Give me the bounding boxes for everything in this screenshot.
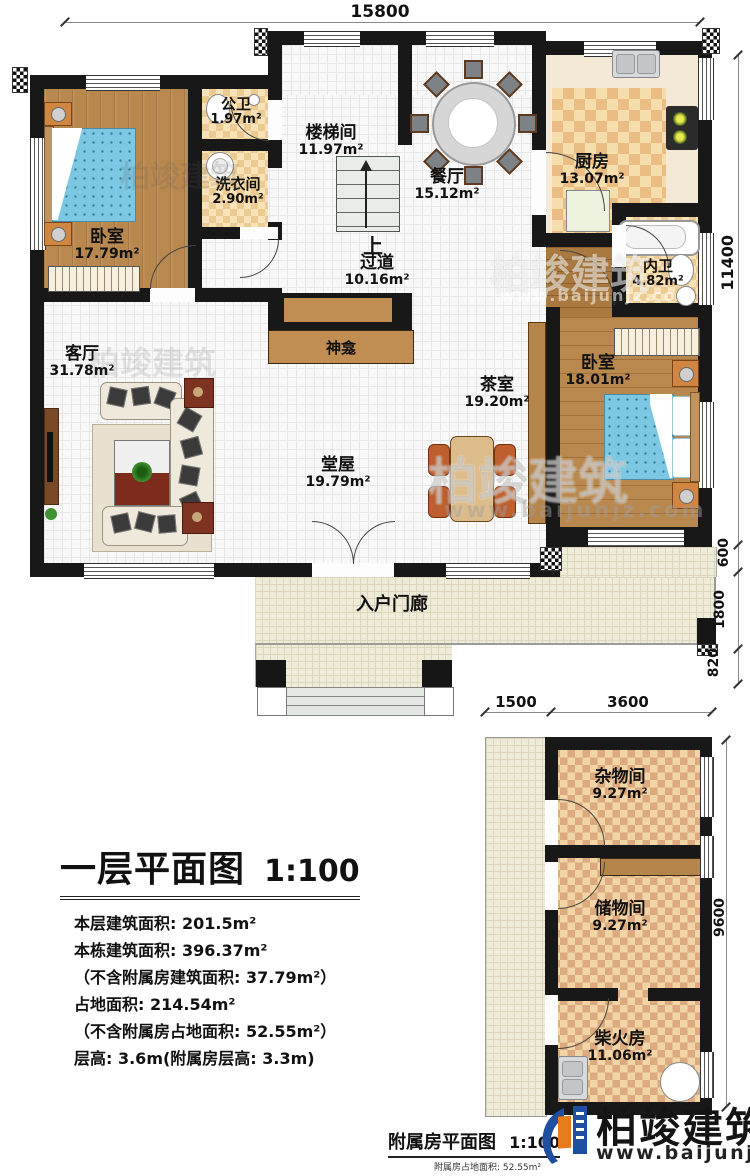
wall	[545, 1045, 558, 1102]
door-gap	[268, 100, 282, 140]
window	[698, 58, 714, 120]
sink-ensuite	[676, 286, 696, 306]
dimension-line-top	[65, 22, 700, 23]
window	[700, 836, 714, 878]
wall	[648, 988, 700, 1001]
sofa-pillow	[106, 386, 127, 407]
door-gap	[612, 225, 626, 267]
porch-label: 入户门廊	[332, 590, 452, 616]
window	[588, 529, 684, 547]
window	[84, 563, 214, 579]
dining-chair	[464, 166, 483, 185]
tea-table	[450, 436, 494, 522]
hatch-mark	[254, 28, 268, 56]
shrine-console: 神龛	[268, 330, 414, 364]
nightstand	[672, 482, 699, 509]
annex-side-passage	[485, 737, 547, 1117]
dining-chair	[464, 60, 483, 79]
bed-pillow	[672, 396, 692, 436]
dimension-right-11400: 11400	[718, 235, 737, 291]
toilet-public	[206, 94, 230, 124]
window	[426, 31, 494, 47]
hatch-mark	[12, 67, 28, 93]
info-line: 占地面积: 214.54m²	[74, 991, 360, 1018]
info-line: （不含附属房占地面积: 52.55m²）	[74, 1018, 360, 1045]
window	[86, 75, 160, 91]
plan-title-block: 一层平面图 1:100 本层建筑面积: 201.5m² 本栋建筑面积: 396.…	[60, 840, 360, 1072]
dimension-line-right	[738, 55, 739, 685]
info-line: （不含附属房建筑面积: 37.79m²）	[74, 964, 360, 991]
wall	[532, 215, 546, 247]
dimension-annex-9600: 9600	[712, 898, 728, 937]
window	[304, 31, 360, 47]
wall	[612, 303, 712, 317]
bed-headboard	[690, 392, 700, 482]
window	[446, 563, 530, 579]
sofa-pillow	[178, 464, 200, 486]
wall	[612, 203, 712, 217]
window	[700, 757, 714, 817]
bed-pillow	[672, 438, 692, 478]
dining-table-center	[448, 98, 498, 148]
plant	[132, 462, 152, 482]
tea-chair	[428, 444, 450, 476]
dimension-right-1800: 1800	[712, 590, 728, 629]
entry-door-gap	[312, 563, 394, 577]
porch-pillar	[422, 660, 452, 687]
sofa-pillow	[157, 514, 177, 534]
tea-cabinet	[528, 322, 546, 524]
bed-sheet	[650, 394, 672, 478]
wall	[545, 845, 558, 862]
dimension-top-label: 15800	[330, 2, 430, 22]
floor-plan-canvas: 15800 神龛	[0, 0, 750, 1176]
wall	[545, 737, 558, 800]
hatch-mark	[540, 547, 562, 571]
window	[698, 233, 714, 305]
shrine-recess	[284, 298, 392, 322]
wall	[532, 45, 546, 150]
dimension-right-600: 600	[716, 538, 732, 567]
plan-title-row: 一层平面图 1:100	[60, 840, 360, 900]
wall	[546, 307, 560, 577]
annex-caption-title: 附属房平面图	[388, 1132, 496, 1153]
dimension-line-annex-top	[485, 712, 712, 713]
side-table-detail	[192, 512, 202, 522]
annex-caption: 附属房平面图 1:100 附属房占地面积: 52.55m²	[388, 1128, 560, 1173]
info-line: 本栋建筑面积: 396.37m²	[74, 937, 360, 964]
nightstand	[44, 222, 72, 246]
wall	[268, 140, 282, 168]
wall	[268, 45, 282, 100]
kitchen-sink-bowl	[637, 54, 656, 74]
stove-burner	[673, 130, 687, 144]
wall	[545, 737, 700, 750]
porch-column-base	[257, 687, 287, 716]
sofa-pillow	[110, 512, 131, 533]
wall	[545, 910, 558, 995]
wall	[546, 233, 612, 247]
annex-shelf	[600, 858, 702, 876]
stove-burner	[673, 112, 687, 126]
hatch-mark	[702, 28, 720, 54]
side-table-detail	[193, 387, 203, 397]
bed-sheet	[52, 128, 82, 220]
door-gap	[532, 150, 546, 215]
plan-title: 一层平面图	[60, 849, 245, 890]
porch-step	[285, 705, 427, 716]
stairs-up-label: 上	[358, 230, 388, 259]
dining-chair	[410, 114, 429, 133]
brand-url: www.baijunjz.com	[596, 1142, 750, 1164]
tv	[47, 432, 53, 482]
door-gap	[545, 995, 558, 1045]
kitchen-sink-bowl	[616, 54, 635, 74]
annex-sink-bowl	[562, 1079, 583, 1095]
info-line: 层高: 3.6m(附属房层高: 3.3m)	[74, 1045, 360, 1072]
wall	[558, 845, 700, 858]
plan-scale: 1:100	[264, 854, 360, 889]
wardrobe	[614, 328, 700, 356]
washing-machine-drum	[212, 158, 228, 174]
window	[698, 402, 714, 488]
dining-chair	[518, 114, 537, 133]
door-gap	[545, 862, 558, 910]
annex-caption-note: 附属房占地面积: 52.55m²	[388, 1160, 560, 1173]
plant-small	[45, 508, 57, 520]
door-gap	[545, 800, 558, 845]
door-gap	[240, 227, 278, 239]
info-line: 本层建筑面积: 201.5m²	[74, 910, 360, 937]
tea-chair	[428, 486, 450, 518]
nightstand	[672, 360, 699, 387]
stair-arrow-line	[365, 170, 367, 228]
window	[700, 1052, 714, 1098]
nightstand	[44, 102, 72, 126]
sofa-pillow	[131, 386, 151, 406]
dimension-annex-3600: 3600	[583, 693, 673, 711]
tea-chair	[494, 444, 516, 476]
brand-logo-icon	[538, 1098, 592, 1168]
dimension-right-820: 820	[706, 648, 722, 677]
porch-floor-side	[560, 547, 717, 577]
wardrobe	[48, 266, 140, 292]
door-gap	[150, 288, 195, 302]
porch-floor	[255, 577, 716, 645]
dimension-annex-1500: 1500	[486, 693, 546, 711]
tea-chair	[494, 486, 516, 518]
toilet-ensuite	[668, 254, 694, 286]
stair-arrow-head	[360, 160, 372, 171]
annex-caption-row: 附属房平面图 1:100	[388, 1128, 560, 1158]
porch-column-base	[424, 687, 454, 716]
annex-sink-bowl	[562, 1061, 583, 1077]
porch-pillar	[256, 660, 286, 687]
